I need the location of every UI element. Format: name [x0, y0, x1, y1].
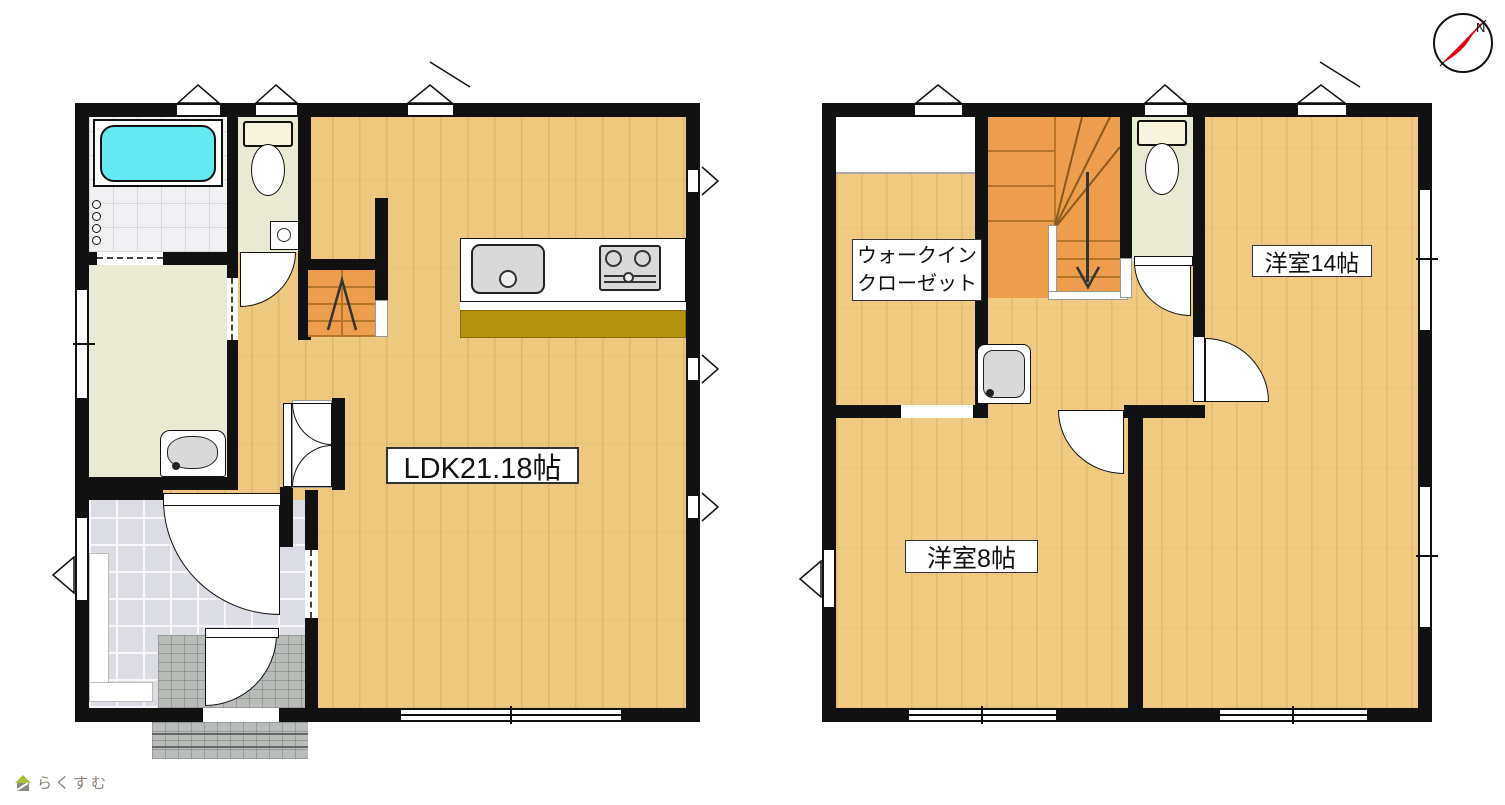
stairs1-east-wall — [375, 198, 388, 300]
washroom-sliding-door — [227, 278, 238, 340]
stairs1-opening — [375, 300, 388, 337]
vent-flag-icon — [701, 166, 721, 196]
washbasin-1f — [160, 430, 226, 477]
toilet2-east-wall — [1193, 103, 1205, 338]
vent-window-right — [686, 356, 700, 382]
kitchen-sink — [471, 244, 545, 294]
window-ldk-top — [408, 103, 453, 117]
room-partition-wall — [1128, 405, 1143, 708]
ldk-label: LDK21.18帖 — [386, 447, 579, 484]
compass-icon — [1430, 10, 1496, 76]
hall-closet-door-leaf — [283, 403, 292, 487]
stairs1-up-arrow-icon — [322, 272, 362, 334]
ldk-sliding-window — [401, 708, 621, 722]
washing-machine-pan — [270, 221, 299, 250]
bathtub — [93, 119, 223, 187]
genkan-step — [89, 682, 153, 702]
vent-window-right — [686, 168, 700, 194]
stairs2-east-wall — [1120, 103, 1132, 258]
wic-label: ウォークイン クローゼット — [852, 239, 982, 301]
vent-triangle-icon — [52, 556, 75, 594]
window-swing-line-icon — [428, 60, 473, 90]
washbasin-2f — [977, 344, 1031, 404]
vent-flag-icon — [701, 354, 721, 384]
stairwell-edge-left — [1048, 225, 1057, 300]
shower-knob-icon — [92, 236, 101, 245]
window-room8-left — [822, 550, 836, 607]
wic-label-line2: クローゼット — [857, 270, 977, 298]
wic-top-space — [836, 117, 975, 174]
stairs2-down-arrow-icon — [1075, 265, 1101, 291]
vent-triangle-icon — [799, 560, 822, 598]
room14-label-text: 洋室14帖 — [1265, 244, 1360, 278]
window-wic-top — [915, 103, 962, 117]
genkan-north-wall — [89, 487, 163, 500]
room8-sliding-window — [909, 708, 1056, 722]
entrance-porch — [152, 722, 308, 759]
logo-text: らくすむ — [37, 772, 109, 793]
room8-label-text: 洋室8帖 — [927, 539, 1016, 575]
hall-closet-east-wall — [332, 398, 345, 490]
floor-plan-canvas: LDK21.18帖 ウォークイン クローゼット — [0, 0, 1505, 805]
hall-genkan-door-leaf — [163, 493, 282, 506]
wic-label-line1: ウォークイン — [857, 242, 977, 270]
window-toilet2-top — [1145, 103, 1187, 117]
stove — [599, 245, 661, 291]
window-room14-right-upper — [1418, 190, 1432, 330]
window-peak-icon — [1144, 84, 1187, 104]
window-room14-top — [1298, 103, 1346, 117]
window-peak-icon — [255, 84, 298, 104]
front-door-leaf — [205, 628, 279, 638]
compass-north-label: N — [1476, 20, 1485, 35]
genkan-sliding-door — [305, 550, 318, 618]
window-room14-right-lower — [1418, 487, 1432, 627]
stairs1-north-wall — [298, 259, 387, 270]
logo: らくすむ — [14, 772, 109, 793]
ldk-label-text: LDK21.18帖 — [404, 445, 562, 487]
window-washroom-left — [75, 290, 89, 398]
stairs-1f — [308, 270, 375, 337]
shower-knob-icon — [92, 224, 101, 233]
kitchen-counter — [460, 238, 686, 302]
room14-door-leaf — [1193, 336, 1205, 402]
shower-knob-icon — [92, 212, 101, 221]
genkan-wall-stub — [280, 487, 293, 547]
vent-window-right — [686, 494, 700, 520]
room14-label: 洋室14帖 — [1252, 245, 1372, 277]
bath-toilet-wall — [227, 117, 238, 265]
wic-door-opening — [901, 405, 973, 418]
stairs2-opening — [1120, 258, 1132, 298]
bathtub-water — [100, 125, 216, 182]
kitchen-cabinet — [460, 310, 686, 338]
vent-flag-icon — [701, 492, 721, 522]
stairwell-edge-bottom — [1048, 291, 1128, 300]
front-door-threshold — [203, 708, 279, 722]
shower-knob-icon — [92, 200, 101, 209]
window-swing-line-icon — [1318, 60, 1363, 90]
toilet2-bowl — [1145, 143, 1179, 195]
toilet1-bowl — [251, 144, 285, 196]
window-peak-icon — [177, 84, 220, 104]
toilet2-door-leaf — [1134, 256, 1193, 266]
window-peak-icon — [915, 84, 962, 104]
window-toilet1-top — [256, 103, 297, 117]
window-genkan-left — [75, 518, 89, 600]
window-bathroom-top — [177, 103, 220, 117]
shoe-cabinet — [89, 553, 109, 685]
bathroom-sliding-door — [97, 252, 163, 265]
room14-sliding-window — [1220, 708, 1367, 722]
counter-edge — [460, 302, 686, 310]
room8-label: 洋室8帖 — [905, 540, 1038, 573]
logo-house-icon — [14, 774, 32, 792]
